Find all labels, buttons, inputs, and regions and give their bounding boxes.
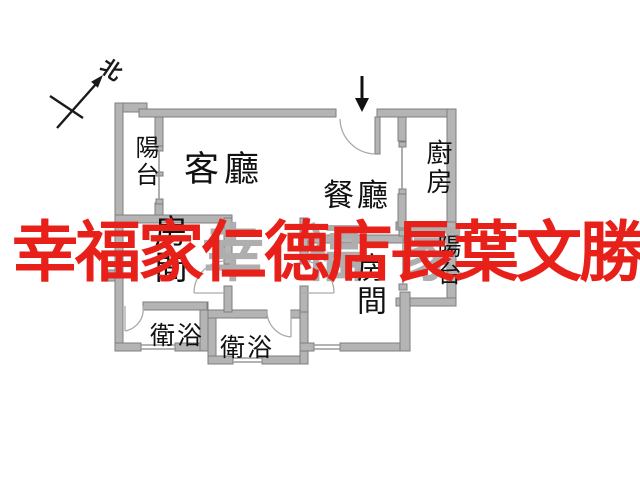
- wall-bath1-top: [143, 302, 207, 310]
- floor-plan-page: 幸福家 陽台 客廳 餐廳 廚房 房間 房間 衛浴 衛浴 陽台 北 幸福家仁德店長…: [0, 0, 640, 480]
- wall-bath2-top-a: [208, 310, 267, 318]
- label-bath-right: 衛浴: [220, 328, 274, 364]
- wall-bedroom-right-side: [400, 292, 410, 351]
- entrance-door-leaf: [375, 117, 380, 154]
- north-arrow: [50, 75, 103, 128]
- entrance-arrow-head: [355, 98, 369, 112]
- label-balcony-left: 陽台: [127, 135, 162, 189]
- red-watermark: 幸福家仁德店長葉文勝: [12, 199, 640, 295]
- entrance-door-arc: [340, 119, 375, 154]
- wall-bath1-bottom-a: [115, 343, 141, 351]
- label-living-room: 客廳: [184, 141, 264, 192]
- wall-top-right-of-entrance: [377, 109, 453, 117]
- bath1-door-arc: [125, 306, 143, 331]
- wall-bath2-right: [300, 310, 308, 364]
- entrance-arrow: [355, 76, 369, 112]
- label-kitchen: 廚房: [420, 139, 457, 197]
- wall-top-left-of-entrance: [139, 109, 336, 117]
- label-bath-left: 衛浴: [150, 316, 204, 352]
- wall-kitchen-partition-top: [398, 117, 406, 141]
- wall-bedroom-right-bottom-a: [300, 343, 314, 351]
- north-arrow-cross: [50, 96, 83, 118]
